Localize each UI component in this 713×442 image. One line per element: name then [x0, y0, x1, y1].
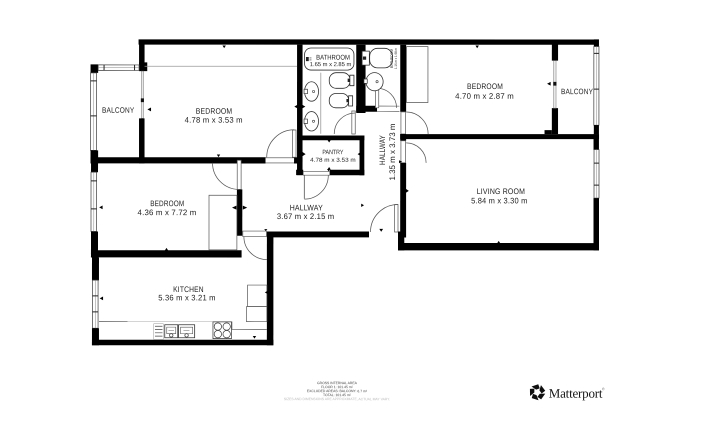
svg-text:4.78 m x 3.53 m: 4.78 m x 3.53 m	[185, 116, 243, 125]
svg-text:1.65 m x 2.85 m: 1.65 m x 2.85 m	[310, 61, 352, 68]
svg-text:5.84 m x 3.30 m: 5.84 m x 3.30 m	[471, 196, 528, 205]
svg-text:4.36 m x 7.72 m: 4.36 m x 7.72 m	[138, 208, 197, 217]
svg-text:5.36 m x 3.21 m: 5.36 m x 3.21 m	[158, 293, 216, 302]
svg-text:4.70 m x 2.87 m: 4.70 m x 2.87 m	[455, 92, 514, 101]
svg-text:BALCONY: BALCONY	[561, 87, 593, 96]
svg-text:LIVING ROOM: LIVING ROOM	[477, 187, 525, 196]
svg-text:BATHROOM: BATHROOM	[316, 55, 350, 62]
svg-text:3.67 m x 2.15 m: 3.67 m x 2.15 m	[277, 212, 335, 221]
svg-text:1.35 m x 3.73 m: 1.35 m x 3.73 m	[388, 123, 397, 180]
svg-text:1.16 m x 1.98 m: 1.16 m x 1.98 m	[394, 48, 398, 69]
svg-text:SIZES AND DIMENSIONS ARE APPRO: SIZES AND DIMENSIONS ARE APPROXIMATE, AC…	[284, 397, 390, 401]
svg-text:HALLWAY: HALLWAY	[378, 135, 387, 165]
svg-text:BEDROOM: BEDROOM	[467, 82, 503, 91]
svg-text:BEDROOM: BEDROOM	[196, 107, 233, 116]
svg-text:BALCONY: BALCONY	[102, 106, 135, 115]
svg-text:4.78 m x 3.53 m: 4.78 m x 3.53 m	[310, 157, 356, 164]
svg-text:PANTRY: PANTRY	[322, 149, 344, 156]
svg-text:BEDROOM: BEDROOM	[150, 199, 184, 208]
svg-text:®: ®	[602, 387, 605, 391]
svg-text:Matterport: Matterport	[549, 386, 603, 401]
